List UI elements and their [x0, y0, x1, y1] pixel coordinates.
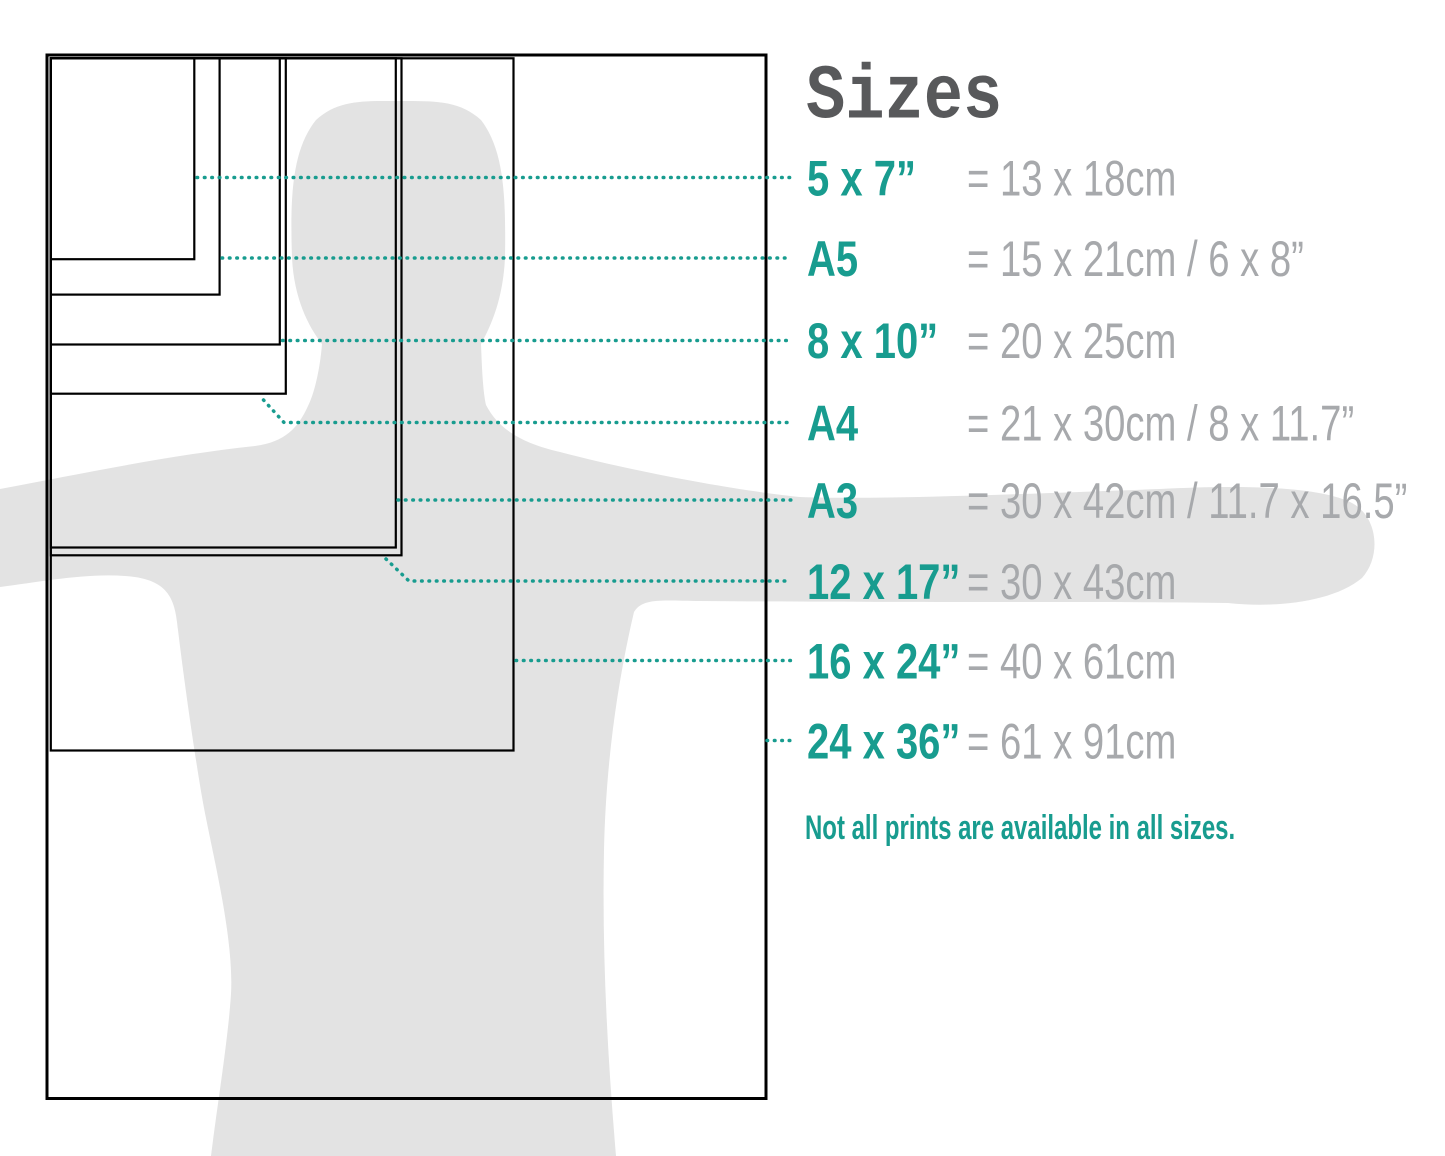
svg-text:= 61 x 91cm: = 61 x 91cm [967, 715, 1176, 770]
svg-text:Not all prints are available i: Not all prints are available in all size… [805, 809, 1235, 847]
svg-text:8 x 10”: 8 x 10” [807, 313, 938, 369]
svg-text:= 15 x 21cm / 6 x 8”: = 15 x 21cm / 6 x 8” [967, 232, 1304, 287]
svg-text:A5: A5 [807, 231, 858, 287]
svg-text:5 x 7”: 5 x 7” [807, 150, 916, 206]
svg-text:= 21 x 30cm / 8 x 11.7”: = 21 x 30cm / 8 x 11.7” [967, 397, 1354, 452]
svg-text:12 x 17”: 12 x 17” [807, 554, 960, 610]
svg-text:A4: A4 [807, 395, 858, 451]
svg-text:= 13 x 18cm: = 13 x 18cm [967, 152, 1176, 207]
svg-text:= 40 x 61cm: = 40 x 61cm [967, 635, 1176, 690]
svg-text:A3: A3 [807, 473, 858, 529]
svg-text:Sizes: Sizes [806, 55, 1002, 141]
svg-text:= 20 x 25cm: = 20 x 25cm [967, 314, 1176, 369]
svg-text:24 x 36”: 24 x 36” [807, 713, 960, 769]
svg-text:16 x 24”: 16 x 24” [807, 633, 960, 689]
svg-text:= 30 x 42cm / 11.7 x 16.5”: = 30 x 42cm / 11.7 x 16.5” [967, 474, 1407, 529]
svg-text:= 30 x 43cm: = 30 x 43cm [967, 555, 1176, 610]
